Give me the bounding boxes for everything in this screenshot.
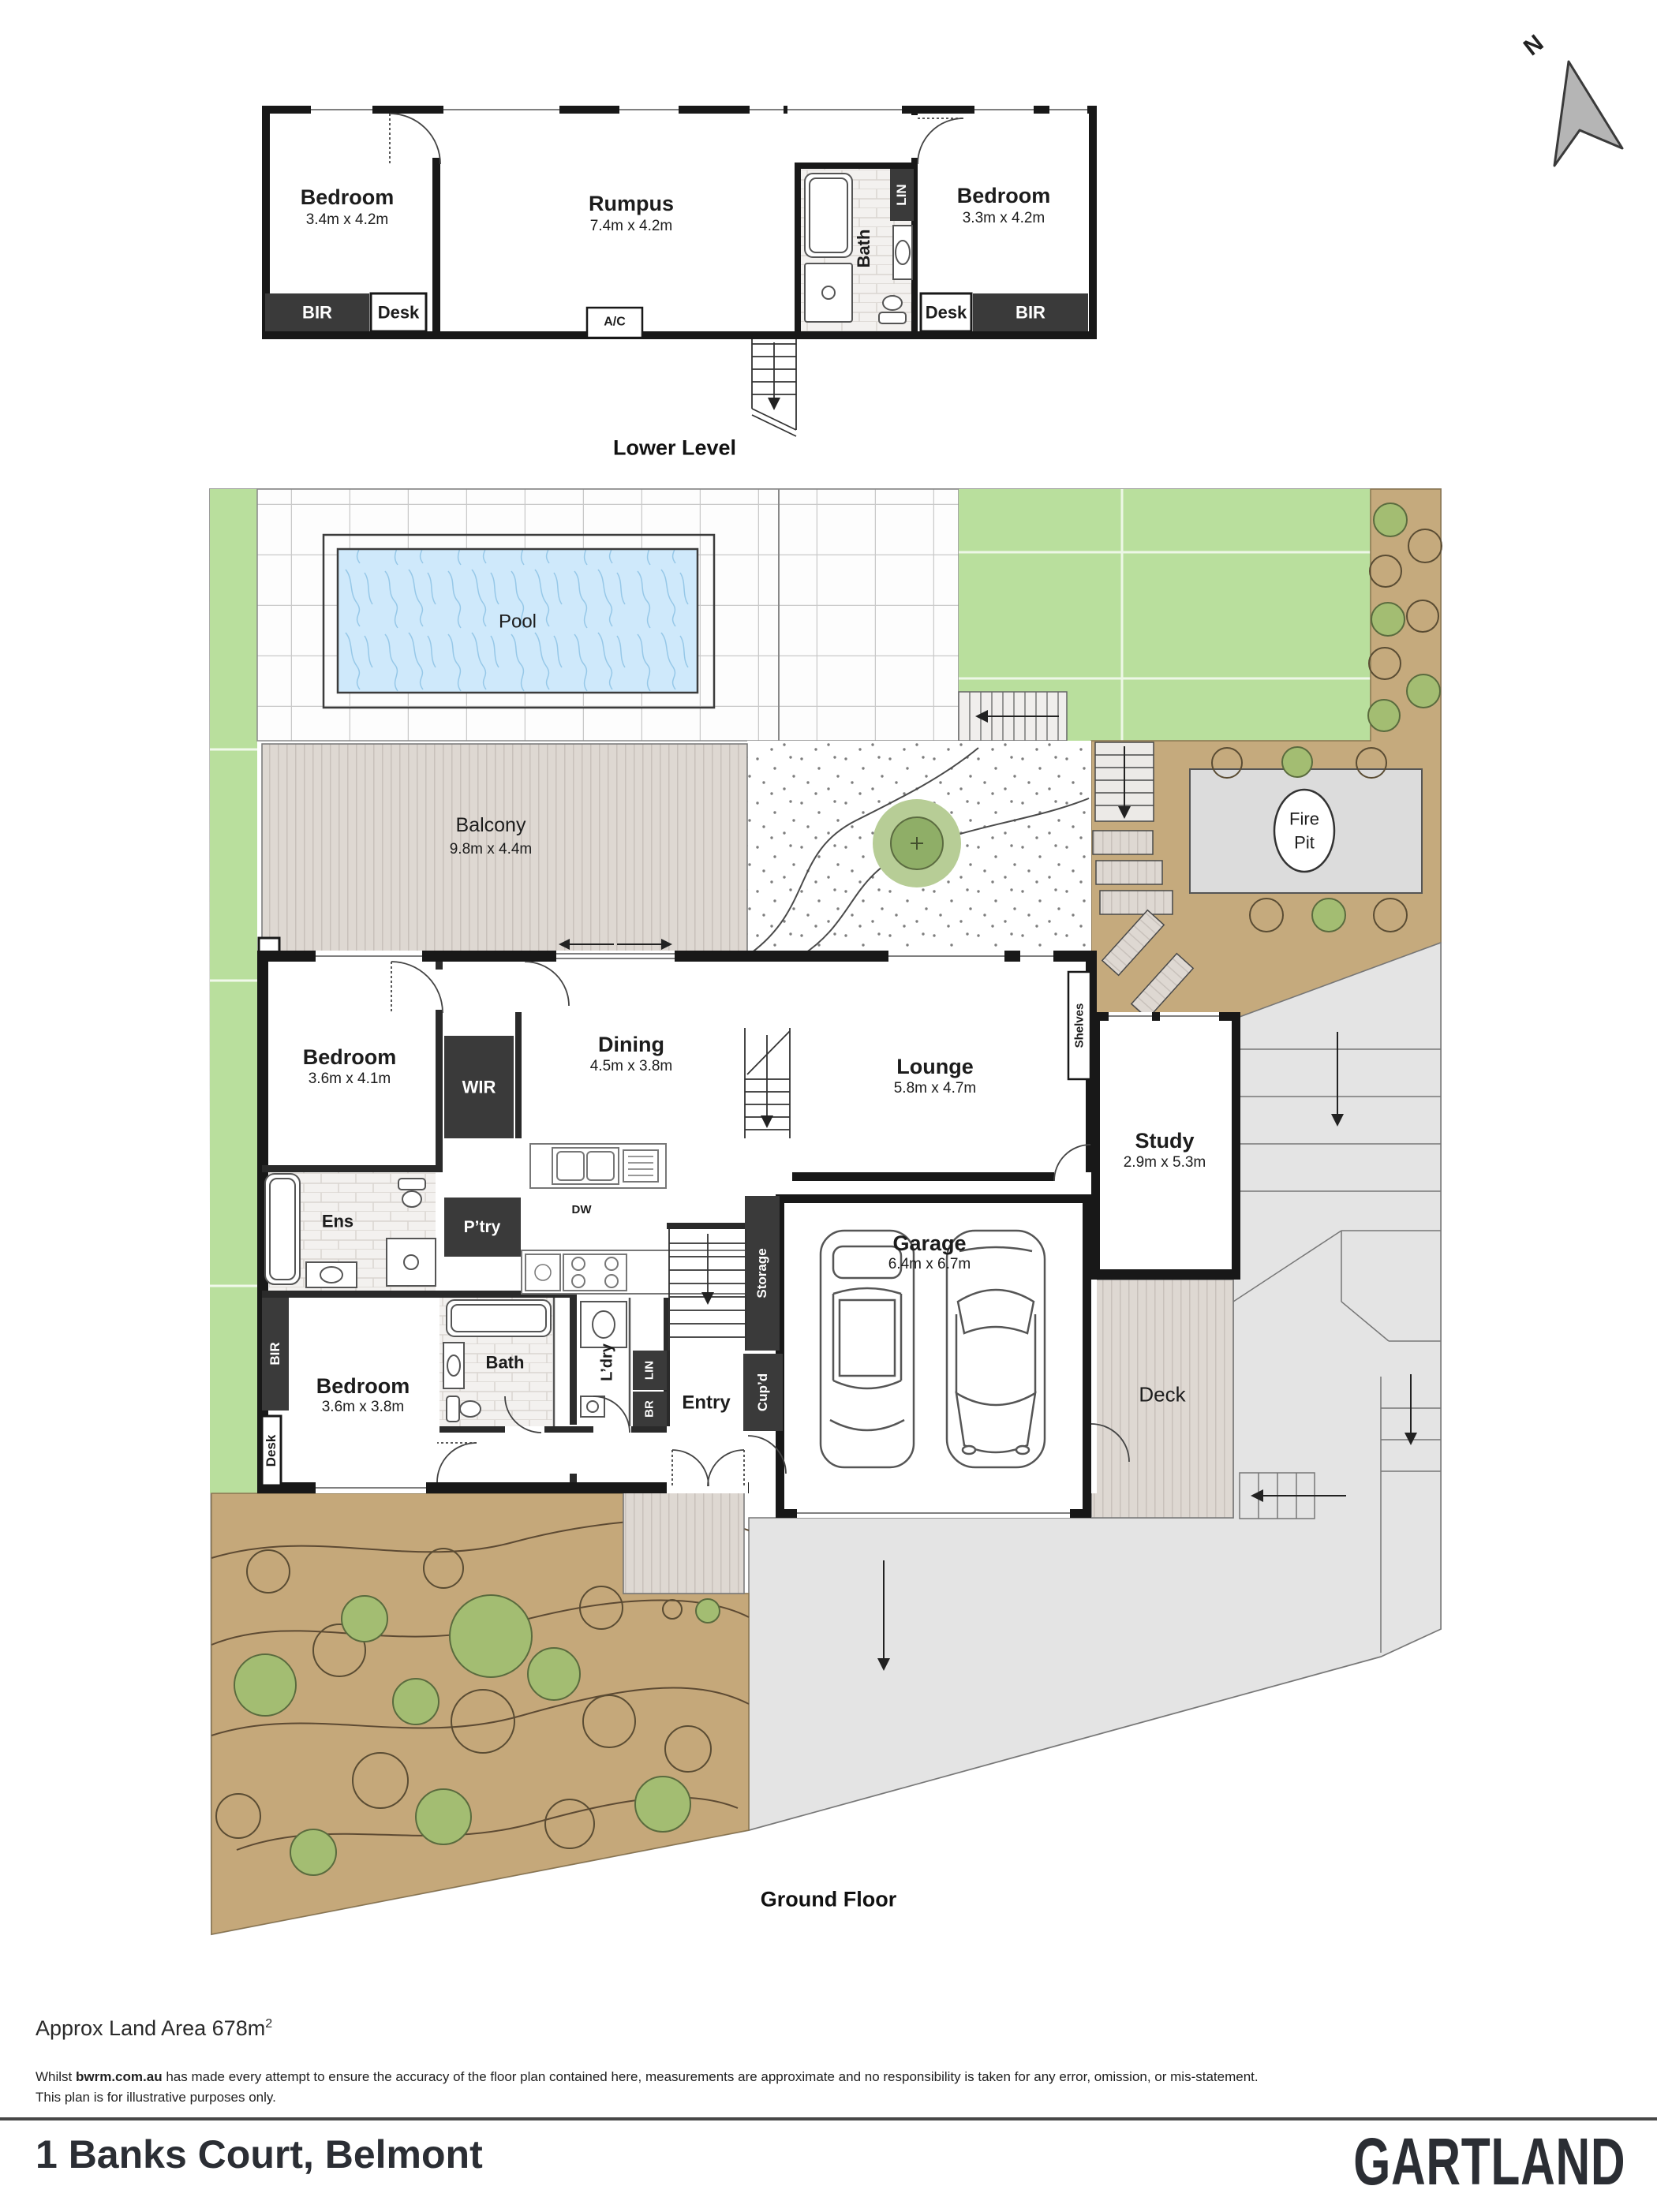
label-fire-pit-2: Pit [1294, 833, 1315, 851]
room-label-bedroom-ll-left: Bedroom [301, 186, 395, 208]
room-label-bath-ll: Bath [854, 230, 874, 268]
room-label-dining: Dining [598, 1033, 664, 1056]
label-shelves: Shelves [1073, 1003, 1087, 1048]
footer-divider [0, 2117, 1657, 2120]
label-br: BR [643, 1400, 656, 1418]
label-entry: Entry [682, 1392, 730, 1412]
floor-plan-graphics [0, 0, 1657, 2212]
room-label-lounge: Lounge [896, 1056, 973, 1078]
room-dims-garage: 6.4m x 6.7m [888, 1257, 971, 1272]
floorplan-page: Bedroom 3.4m x 4.2m Rumpus 7.4m x 4.2m B… [0, 0, 1657, 2212]
label-ac: A/C [604, 316, 626, 330]
side-grass-strip [210, 489, 257, 1493]
room-dims-bedroom-ll-right: 3.3m x 4.2m [963, 211, 1045, 226]
land-area-sup: 2 [265, 2017, 272, 2031]
room-label-bedroom-ll-right: Bedroom [957, 185, 1051, 207]
tree [873, 799, 961, 887]
label-cupboard: Cup’d [755, 1373, 771, 1411]
label-deck: Deck [1139, 1384, 1185, 1405]
label-laundry: L’dry [599, 1343, 617, 1381]
room-dims-rumpus: 7.4m x 4.2m [590, 219, 673, 234]
label-desk-gf: Desk [264, 1435, 279, 1467]
disclaimer-brand: bwrm.com.au [76, 2069, 163, 2084]
label-desk-ll-right: Desk [926, 303, 967, 321]
room-label-garage: Garage [892, 1232, 966, 1254]
disclaimer-line2: This plan is for illustrative purposes o… [36, 2090, 276, 2105]
room-dims-bedroom-ll-left: 3.4m x 4.2m [306, 212, 389, 228]
room-dims-study: 2.9m x 5.3m [1124, 1155, 1206, 1171]
room-label-study: Study [1135, 1130, 1194, 1152]
room-dims-bedroom-lower: 3.6m x 3.8m [322, 1399, 405, 1415]
label-balcony: Balcony [456, 815, 526, 835]
label-pantry: P’try [464, 1219, 501, 1236]
fire-pit [1274, 790, 1334, 872]
north-arrow-icon [1554, 62, 1622, 166]
caption-lower-level: Lower Level [613, 436, 736, 461]
label-desk-ll-left: Desk [378, 303, 420, 321]
room-label-rumpus: Rumpus [589, 192, 674, 215]
label-bath-gf: Bath [486, 1353, 525, 1371]
dims-balcony: 9.8m x 4.4m [450, 842, 533, 858]
label-pool: Pool [499, 611, 537, 631]
lower-stairs [752, 339, 796, 436]
room-dims-lounge: 5.8m x 4.7m [894, 1081, 977, 1097]
room-dims-dining: 4.5m x 3.8m [590, 1059, 673, 1074]
label-dw: DW [572, 1204, 592, 1216]
entry-porch [623, 1489, 744, 1594]
label-fire-pit-1: Fire [1289, 809, 1319, 828]
lower-level-plan [262, 106, 1097, 436]
label-lin-ll: LIN [894, 184, 910, 205]
land-area-text: Approx Land Area 678m2 [36, 2016, 272, 2041]
disclaimer-text: Whilst bwrm.com.au has made every attemp… [36, 2067, 1621, 2109]
agency-logo: GARTLAND [1353, 2124, 1625, 2200]
label-lin-gf: LIN [643, 1361, 656, 1380]
property-address: 1 Banks Court, Belmont [36, 2132, 483, 2177]
label-bir-ll-left: BIR [302, 303, 332, 321]
land-area-value: Approx Land Area 678m [36, 2016, 265, 2040]
label-storage: Storage [754, 1248, 770, 1298]
room-label-bedroom-lower: Bedroom [316, 1375, 410, 1397]
label-bir-gf: BIR [267, 1342, 283, 1365]
label-wir: WIR [462, 1078, 496, 1096]
caption-ground-floor: Ground Floor [761, 1888, 896, 1912]
label-bir-ll-right: BIR [1016, 303, 1045, 321]
label-ens: Ens [322, 1212, 353, 1230]
room-label-bedroom-upper: Bedroom [303, 1046, 397, 1068]
lawn-stairs [959, 692, 1067, 741]
house-ground-floor [257, 939, 1240, 1518]
room-dims-bedroom-upper: 3.6m x 4.1m [309, 1071, 391, 1087]
